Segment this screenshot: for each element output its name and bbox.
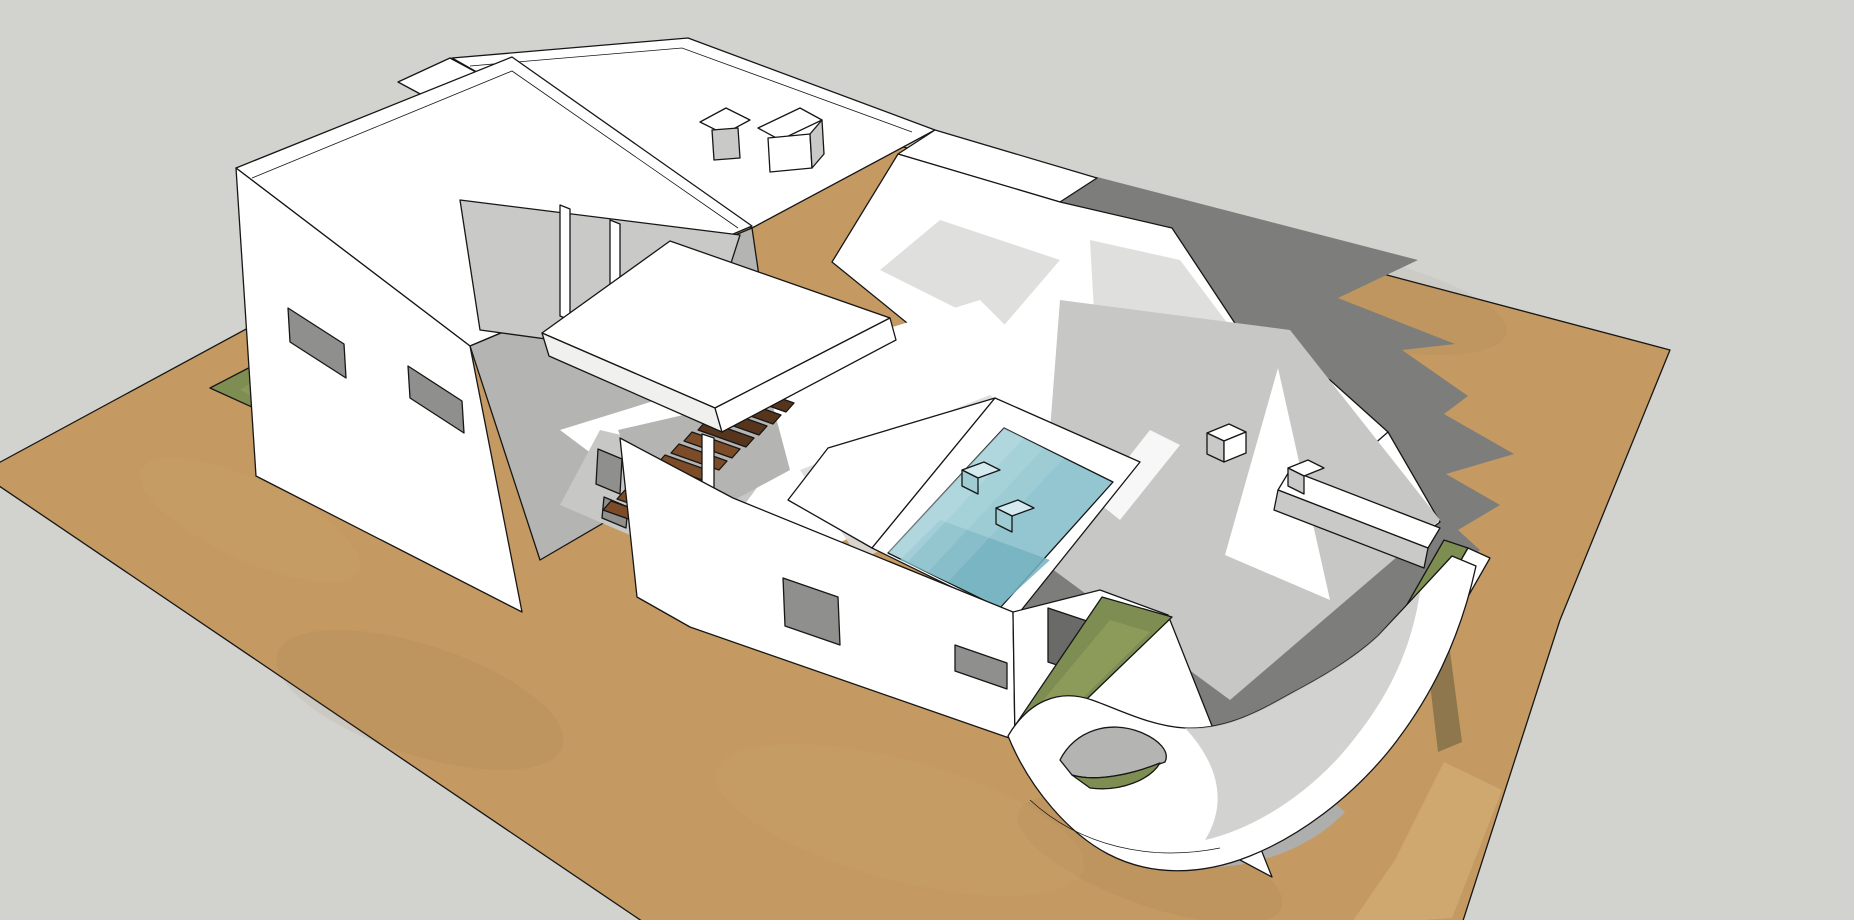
render-canvas[interactable] bbox=[0, 0, 1854, 920]
model-viewport[interactable] bbox=[0, 0, 1854, 920]
terrace-column bbox=[560, 205, 570, 320]
chimney-shaft bbox=[712, 128, 740, 160]
chimney-shaft bbox=[768, 134, 812, 172]
